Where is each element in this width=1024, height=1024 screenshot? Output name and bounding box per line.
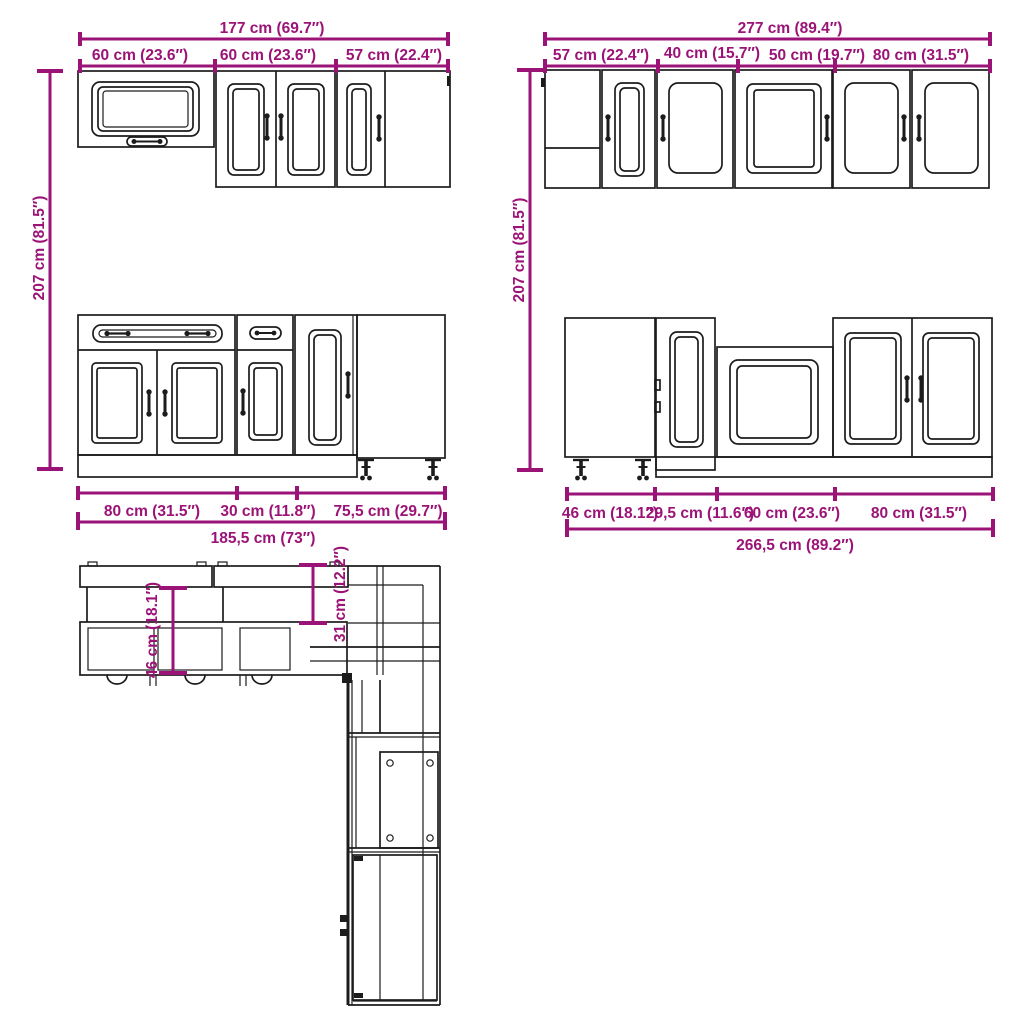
drawer-handle xyxy=(93,325,222,342)
hinge xyxy=(655,380,660,390)
wall-run-right-cabinets xyxy=(541,70,989,188)
plan-return-run xyxy=(340,680,440,1005)
dim-label-segment: 40 cm (15.7″) xyxy=(664,45,760,62)
dim-label-height: 207 cm (81.5″) xyxy=(31,196,48,301)
dim-label-segment: 60 cm (23.6″) xyxy=(744,505,840,522)
dim-base-run-right: 46 cm (18.1″) 29,5 cm (11.6″) 60 cm (23.… xyxy=(562,487,993,554)
door-handle xyxy=(901,114,906,141)
handle-bump xyxy=(107,675,127,684)
base-run-left-cabinets xyxy=(78,315,445,480)
wall-cabinet-50 xyxy=(735,70,832,188)
wall-cabinet-60-bridge xyxy=(78,71,214,147)
dim-label-segment: 80 cm (31.5″) xyxy=(871,505,967,522)
base-cabinet-29-tall-door xyxy=(655,318,715,470)
wall-cabinet-narrow-door xyxy=(602,70,655,188)
door-handle xyxy=(904,375,909,402)
dim-height-left: 207 cm (81.5″) xyxy=(31,71,63,469)
door-handle xyxy=(146,389,151,416)
base-cabinet-80-double xyxy=(833,318,992,457)
door-handle xyxy=(824,114,829,141)
plinth xyxy=(656,457,992,477)
dim-label-height: 207 cm (81.5″) xyxy=(511,198,528,303)
hinge xyxy=(655,402,660,412)
wall-cabinet-40 xyxy=(657,70,733,188)
dim-base-run-left: 80 cm (31.5″) 30 cm (11.8″) 75,5 cm (29.… xyxy=(78,486,445,547)
wall-cabinet-80-double xyxy=(833,70,989,188)
cabinet-foot xyxy=(358,460,374,480)
dim-label-segment: 57 cm (22.4″) xyxy=(346,47,442,64)
base-corner-cabinet-46 xyxy=(565,318,655,480)
dim-wall-run-left: 177 cm (69.7″) 60 cm (23.6″) 60 cm (23.6… xyxy=(80,20,448,73)
dim-label-total: 266,5 cm (89.2″) xyxy=(736,537,854,554)
kitchen-dimension-diagram: 177 cm (69.7″) 60 cm (23.6″) 60 cm (23.6… xyxy=(0,0,1024,1024)
handle-bump xyxy=(185,675,205,684)
dim-label-segment: 46 cm (18.1″) xyxy=(562,505,658,522)
wall-run-left-cabinets xyxy=(78,71,450,187)
dim-label-segment: 50 cm (19.7″) xyxy=(769,47,865,64)
dim-label-segment: 57 cm (22.4″) xyxy=(553,47,649,64)
door-handle xyxy=(278,113,283,140)
dim-plan-wall-depth: 31 cm (12.2″) xyxy=(299,546,349,642)
plan-corner-area xyxy=(310,566,440,1005)
dim-plan-base-depth: 46 cm (18.1″) xyxy=(144,582,187,678)
dim-height-right: 207 cm (81.5″) xyxy=(511,70,543,470)
wall-corner-cabinet-57 xyxy=(541,70,600,188)
door-handle xyxy=(605,114,610,141)
dim-label-depth: 31 cm (12.2″) xyxy=(332,546,349,642)
dim-label-total: 277 cm (89.4″) xyxy=(738,20,843,37)
dim-label-segment: 75,5 cm (29.7″) xyxy=(333,503,442,520)
dim-label-total: 185,5 cm (73″) xyxy=(211,530,316,547)
drawer-handle xyxy=(250,327,281,339)
plan-base-row xyxy=(80,622,347,686)
door-handle xyxy=(162,389,167,416)
plinth xyxy=(78,455,357,477)
dim-label-segment: 80 cm (31.5″) xyxy=(104,503,200,520)
handle-peg xyxy=(340,929,348,936)
base-cabinet-30 xyxy=(237,315,293,455)
door-handle xyxy=(240,388,245,415)
door-handle xyxy=(264,113,269,140)
door-handle xyxy=(345,371,350,398)
base-cabinet-80-drawer-doors xyxy=(78,315,235,455)
dim-label-segment: 30 cm (11.8″) xyxy=(220,503,315,520)
dim-label-segment: 60 cm (23.6″) xyxy=(220,47,316,64)
dim-label-depth: 46 cm (18.1″) xyxy=(144,582,161,678)
dim-wall-run-right: 277 cm (89.4″) 57 cm (22.4″) 40 cm (15.7… xyxy=(545,20,990,73)
plan-view xyxy=(80,562,440,1005)
door-handle xyxy=(376,114,381,141)
door-handle xyxy=(916,114,921,141)
cabinet-foot xyxy=(635,460,651,480)
drawer-handle xyxy=(127,137,167,146)
door-handle xyxy=(660,114,665,141)
cabinet-foot xyxy=(425,460,441,480)
handle-peg xyxy=(340,915,348,922)
dim-label-segment: 29,5 cm (11.6″) xyxy=(646,505,754,522)
dim-label-segment: 60 cm (23.6″) xyxy=(92,47,188,64)
wall-cabinet-60-double-door xyxy=(216,71,335,187)
plan-wall-cabinet-strips xyxy=(80,562,440,622)
cabinet-foot xyxy=(573,460,589,480)
wall-cabinet-57-corner xyxy=(337,71,450,187)
dim-label-segment: 80 cm (31.5″) xyxy=(873,47,969,64)
dim-label-total: 177 cm (69.7″) xyxy=(220,20,325,37)
handle-bump xyxy=(252,675,272,684)
plan-shelf-panel xyxy=(356,737,438,848)
base-run-right-cabinets xyxy=(565,318,992,480)
base-cabinet-60-appliance xyxy=(717,347,833,457)
